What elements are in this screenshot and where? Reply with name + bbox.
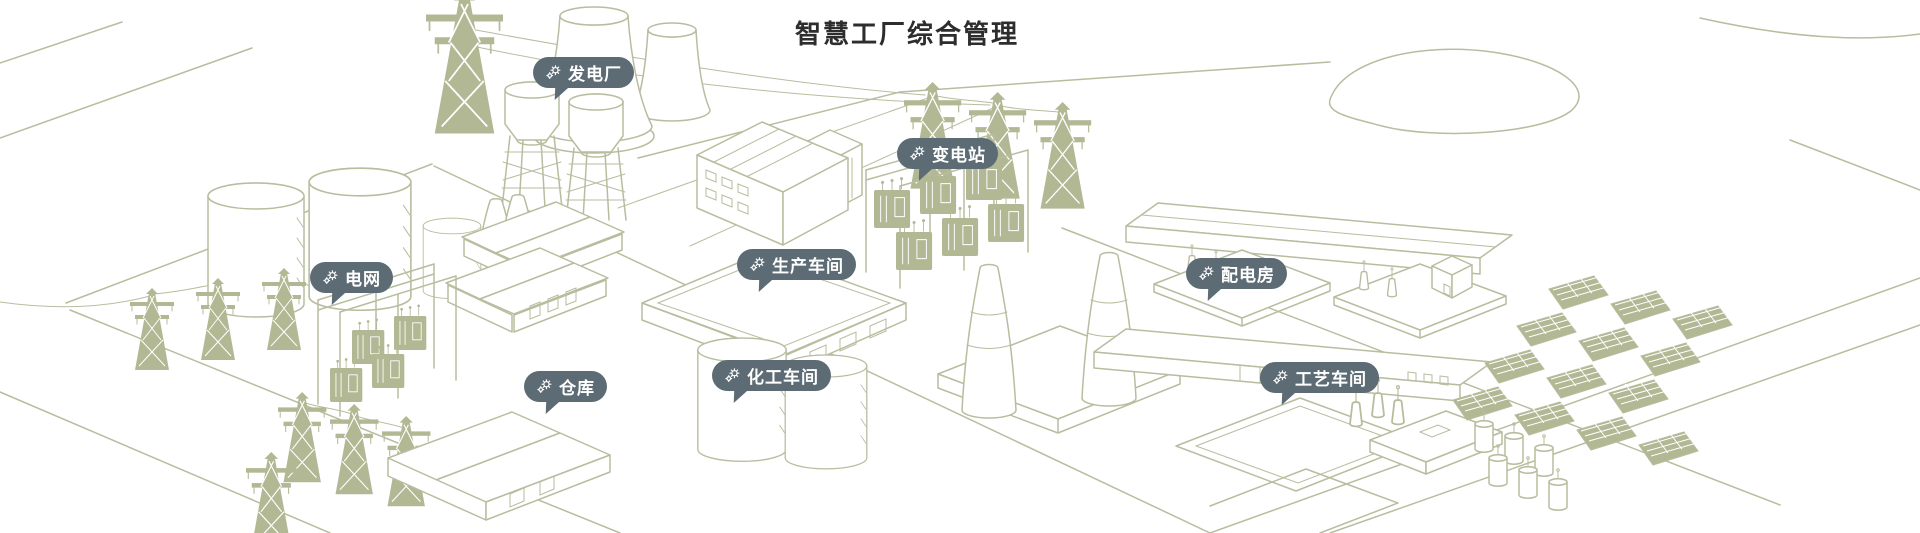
marker-process-workshop[interactable]: 工艺车间	[1260, 362, 1379, 393]
chemical-tanks	[698, 338, 867, 469]
page-title: 智慧工厂综合管理	[795, 14, 1019, 51]
factory-illustration	[0, 0, 1920, 533]
gears-icon	[749, 256, 766, 273]
marker-chemical-workshop[interactable]: 化工车间	[712, 360, 831, 391]
gears-icon	[545, 64, 562, 81]
pond	[1330, 49, 1579, 133]
marker-label: 工艺车间	[1295, 365, 1367, 390]
gears-icon	[724, 367, 741, 384]
marker-production-workshop[interactable]: 生产车间	[737, 249, 856, 280]
process-pads	[1176, 379, 1502, 533]
marker-warehouse[interactable]: 仓库	[524, 371, 607, 402]
gears-icon	[1198, 265, 1215, 282]
marker-label: 化工车间	[747, 363, 819, 388]
marker-substation[interactable]: 变电站	[897, 138, 998, 169]
marker-distribution-room[interactable]: 配电房	[1186, 258, 1287, 289]
marker-label: 仓库	[559, 374, 595, 399]
marker-label: 电网	[345, 265, 381, 290]
marker-power-grid[interactable]: 电网	[310, 262, 393, 293]
marker-label: 发电厂	[568, 60, 622, 85]
transmission-tower-large	[426, 0, 503, 134]
gears-icon	[322, 269, 339, 286]
left-pylons	[130, 268, 306, 370]
marker-label: 配电房	[1221, 261, 1275, 286]
smart-factory-dashboard: 智慧工厂综合管理 发电厂 变电站 电网 生产车间 配电房 仓库 化工车间 工艺车…	[0, 0, 1920, 533]
marker-power-plant[interactable]: 发电厂	[533, 57, 634, 88]
gears-icon	[1272, 369, 1289, 386]
gears-icon	[536, 378, 553, 395]
factory-building	[697, 122, 862, 245]
marker-label: 变电站	[932, 141, 986, 166]
marker-label: 生产车间	[772, 252, 844, 277]
gears-icon	[909, 145, 926, 162]
